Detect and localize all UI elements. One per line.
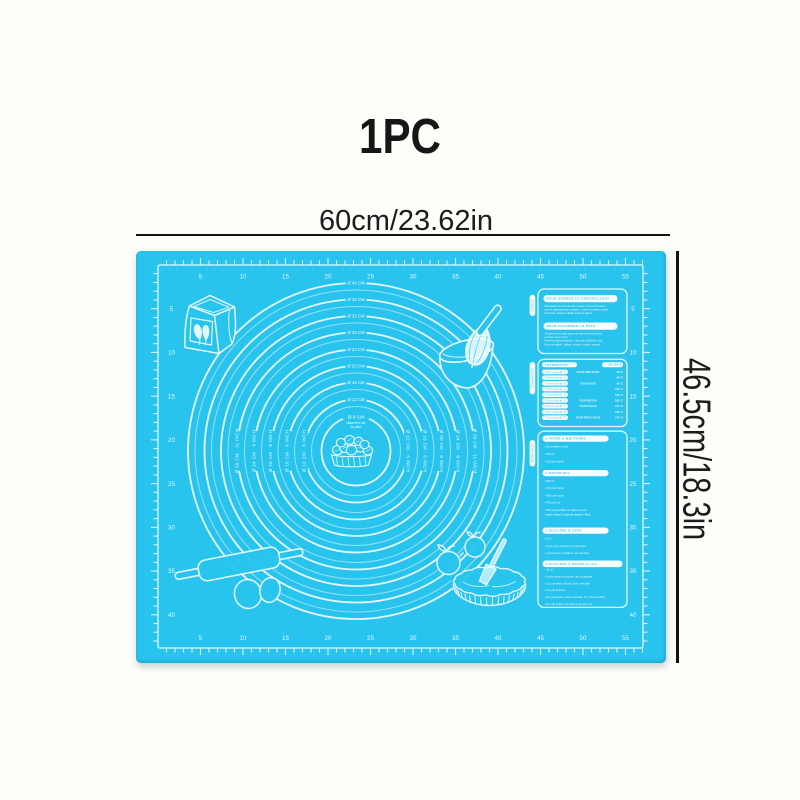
svg-text:POUR FAÇONNER LA PÂTE: POUR FAÇONNER LA PÂTE <box>547 323 596 328</box>
svg-text:1 VERRE À MOUTARDE: 1 VERRE À MOUTARDE <box>546 436 587 441</box>
svg-text:° CELSIUS: ° CELSIUS <box>605 364 622 367</box>
svg-text:55: 55 <box>622 635 629 642</box>
svg-text:Thermostat 7: Thermostat 7 <box>545 404 566 408</box>
svg-text:10: 10 <box>240 274 247 281</box>
svg-text:FOUR CHAUD: FOUR CHAUD <box>579 404 596 408</box>
svg-text:• 5 ml: • 5 ml <box>545 537 552 541</box>
svg-text:• 12 g de sésame: • 12 g de sésame <box>545 588 566 592</box>
svg-text:Ø 20 CM · 8 INCH: Ø 20 CM · 8 INCH <box>439 430 444 472</box>
svg-text:50: 50 <box>580 274 587 281</box>
svg-text:45: 45 <box>537 635 544 642</box>
svg-text:diamètre de: diamètre de <box>347 421 366 425</box>
svg-text:Pour les pâtes feuilletées : q: Pour les pâtes feuilletées : quenelle, f… <box>545 339 603 343</box>
svg-text:la pâte: la pâte <box>351 425 362 429</box>
svg-text:30 °C: 30 °C <box>617 370 624 374</box>
svg-text:25: 25 <box>367 274 374 281</box>
svg-text:• 470 g de riz: • 470 g de riz <box>545 501 561 505</box>
svg-text:FOUR DOUX: FOUR DOUX <box>580 381 596 385</box>
svg-text:120 °C: 120 °C <box>615 387 623 391</box>
svg-text:Thermostat 8: Thermostat 8 <box>545 410 566 414</box>
svg-text:20: 20 <box>325 635 332 642</box>
svg-text:au levée et de 3 mm.: au levée et de 3 mm. <box>545 335 569 339</box>
svg-text:THERMOSTAT: THERMOSTAT <box>545 363 568 367</box>
svg-text:20: 20 <box>630 437 637 444</box>
svg-text:Ø 20 CM: Ø 20 CM <box>347 364 365 369</box>
svg-text:30: 30 <box>410 274 417 281</box>
svg-text:40: 40 <box>495 635 502 642</box>
svg-text:55: 55 <box>622 274 629 281</box>
svg-text:• 20 g de beurre, sucre semoul: • 20 g de beurre, sucre semoule, riz, cr… <box>545 595 606 599</box>
svg-text:90 °C: 90 °C <box>617 381 624 385</box>
svg-text:CONSEILS: CONSEILS <box>531 299 534 311</box>
svg-text:TEMPÉRATURES: TEMPÉRATURES <box>531 368 534 388</box>
svg-text:Ø 12 CM · 5 INCH: Ø 12 CM · 5 INCH <box>405 430 410 472</box>
svg-text:15: 15 <box>282 635 289 642</box>
svg-text:Thermostat 2: Thermostat 2 <box>545 376 566 380</box>
svg-text:• 5 g de sel, de beurre ou de: • 5 g de sel, de beurre ou de sucre <box>545 544 587 548</box>
svg-text:8 minutes, laissez refroidir a: 8 minutes, laissez refroidir avant de ga… <box>545 311 593 315</box>
svg-text:Ø 40 CM: Ø 40 CM <box>347 281 365 286</box>
svg-text:20: 20 <box>325 274 332 281</box>
svg-text:• 500 g de lentilles ou harico: • 500 g de lentilles ou haricots secs <box>545 508 588 512</box>
svg-text:Ø 28 CM · 11 INCH: Ø 28 CM · 11 INCH <box>235 429 240 474</box>
svg-text:15: 15 <box>168 393 175 400</box>
svg-text:35: 35 <box>168 568 175 575</box>
svg-text:Ø 16 CM · 6 INCH: Ø 16 CM · 6 INCH <box>422 430 427 472</box>
svg-text:Thermostat 9: Thermostat 9 <box>545 416 566 420</box>
svg-text:210 °C: 210 °C <box>615 404 623 408</box>
svg-text:1 œuf = 60 g | 1 noix de beurr: 1 œuf = 60 g | 1 noix de beurre = 30 g <box>545 513 591 517</box>
svg-text:35: 35 <box>452 635 459 642</box>
svg-text:1 GRAND BOL: 1 GRAND BOL <box>546 471 571 475</box>
svg-text:Température la pâte pour une t: Température la pâte pour une tarte avec … <box>545 332 603 336</box>
svg-text:240 °C: 240 °C <box>615 410 623 414</box>
svg-text:FOUR MOYEN: FOUR MOYEN <box>579 399 596 403</box>
svg-text:Ø 32 CM: Ø 32 CM <box>347 314 365 319</box>
svg-text:• 20 g de lentils à l’emploi e: • 20 g de lentils à l’emploi et de gros … <box>545 602 593 606</box>
svg-text:FOUR TRÈS CHAUD: FOUR TRÈS CHAUD <box>576 415 601 420</box>
svg-text:Pour les sablés : gâteau, sucr: Pour les sablés : gâteau, sucrée, croust… <box>545 342 602 346</box>
svg-text:60 °C: 60 °C <box>617 376 624 380</box>
svg-text:40: 40 <box>168 612 175 619</box>
svg-text:• 450 g de sucre: • 450 g de sucre <box>545 493 565 497</box>
svg-text:30: 30 <box>630 525 637 532</box>
svg-text:Thermostat 6: Thermostat 6 <box>545 398 566 402</box>
svg-text:30: 30 <box>410 635 417 642</box>
svg-text:Thermostat 5: Thermostat 5 <box>545 393 566 397</box>
svg-text:FOUR TRÈS DOUX: FOUR TRÈS DOUX <box>577 369 600 374</box>
svg-text:• 200 ml: • 200 ml <box>545 452 555 456</box>
svg-text:25: 25 <box>367 635 374 642</box>
svg-text:Ø 16 CM · 6 INCH: Ø 16 CM · 6 INCH <box>285 430 290 472</box>
svg-text:Ø 28 CM: Ø 28 CM <box>347 330 365 335</box>
svg-text:Ø 24 CM: Ø 24 CM <box>347 347 365 352</box>
svg-text:Ø 24 CM · 9 INCH: Ø 24 CM · 9 INCH <box>252 430 257 472</box>
svg-text:180 °C: 180 °C <box>615 399 623 403</box>
svg-text:Ø 12 CM · 5 INCH: Ø 12 CM · 5 INCH <box>302 430 307 472</box>
svg-text:15: 15 <box>282 274 289 281</box>
svg-text:Thermostat 3: Thermostat 3 <box>545 381 566 385</box>
svg-text:25: 25 <box>168 481 175 488</box>
svg-text:Ø 12 CM: Ø 12 CM <box>347 397 365 402</box>
svg-text:5: 5 <box>199 635 203 642</box>
svg-text:• 130 g de farine: • 130 g de farine <box>545 459 565 463</box>
svg-text:10: 10 <box>630 350 637 357</box>
svg-text:15: 15 <box>630 393 637 400</box>
svg-text:Ø 20 CM · 8 INCH: Ø 20 CM · 8 INCH <box>268 430 273 472</box>
svg-text:35: 35 <box>630 568 637 575</box>
svg-text:40: 40 <box>630 612 637 619</box>
svg-text:ÉQUIVALENCES: ÉQUIVALENCES <box>531 444 534 463</box>
svg-text:• 20 centilitres à ras: • 20 centilitres à ras <box>545 445 569 449</box>
svg-text:• 15 ml: • 15 ml <box>545 568 554 572</box>
svg-text:• 500 ml: • 500 ml <box>545 479 555 483</box>
svg-text:270 °C: 270 °C <box>615 416 623 420</box>
svg-text:5: 5 <box>199 274 203 281</box>
svg-text:5: 5 <box>631 306 635 313</box>
svg-text:25: 25 <box>630 481 637 488</box>
svg-text:Thermostat 1: Thermostat 1 <box>545 370 566 374</box>
svg-text:35: 35 <box>452 274 459 281</box>
svg-text:10: 10 <box>168 350 175 357</box>
svg-text:pour le dégorgement en baisse.: pour le dégorgement en baisse. Cuisez le… <box>545 308 610 312</box>
svg-text:20: 20 <box>168 437 175 444</box>
svg-text:Ø 16 CM: Ø 16 CM <box>347 380 365 385</box>
svg-text:5: 5 <box>170 306 174 313</box>
svg-text:50: 50 <box>580 635 587 642</box>
svg-text:Thermostat 4: Thermostat 4 <box>545 387 566 391</box>
svg-text:POUR GARDER LE CROUSTILLANT: POUR GARDER LE CROUSTILLANT <box>547 297 610 301</box>
svg-text:Ø 36 CM: Ø 36 CM <box>347 297 365 302</box>
svg-text:45: 45 <box>537 274 544 281</box>
svg-text:30: 30 <box>168 525 175 532</box>
svg-text:• 12 g de farine, fécule, huil: • 12 g de farine, fécule, huile, semoule <box>545 581 591 585</box>
svg-text:Ø 28 CM · 11 INCH: Ø 28 CM · 11 INCH <box>472 429 477 474</box>
svg-text:150 °C: 150 °C <box>615 393 623 397</box>
svg-text:• 3 g de farine, d’huile ou de: • 3 g de farine, d’huile ou de semoule <box>545 551 590 555</box>
svg-text:1 CUILLÈRE À CAFÉ: 1 CUILLÈRE À CAFÉ <box>546 528 582 533</box>
svg-text:10: 10 <box>240 635 247 642</box>
svg-text:Ø 24 CM · 9 INCH: Ø 24 CM · 9 INCH <box>455 430 460 472</box>
svg-text:Ø 8 CM: Ø 8 CM <box>348 414 365 420</box>
svg-text:Préchauffez le fond de tarte à: Préchauffez le fond de tarte à blanc env… <box>545 304 607 308</box>
svg-text:• 9 g de sucre en poudre, sel: • 9 g de sucre en poudre, sel ou gruyère <box>545 574 593 578</box>
svg-text:1 CUILLÈRE À SOUPE (à ras): 1 CUILLÈRE À SOUPE (à ras) <box>546 561 598 566</box>
svg-text:• 300 g de farine: • 300 g de farine <box>545 486 565 490</box>
svg-text:40: 40 <box>495 274 502 281</box>
